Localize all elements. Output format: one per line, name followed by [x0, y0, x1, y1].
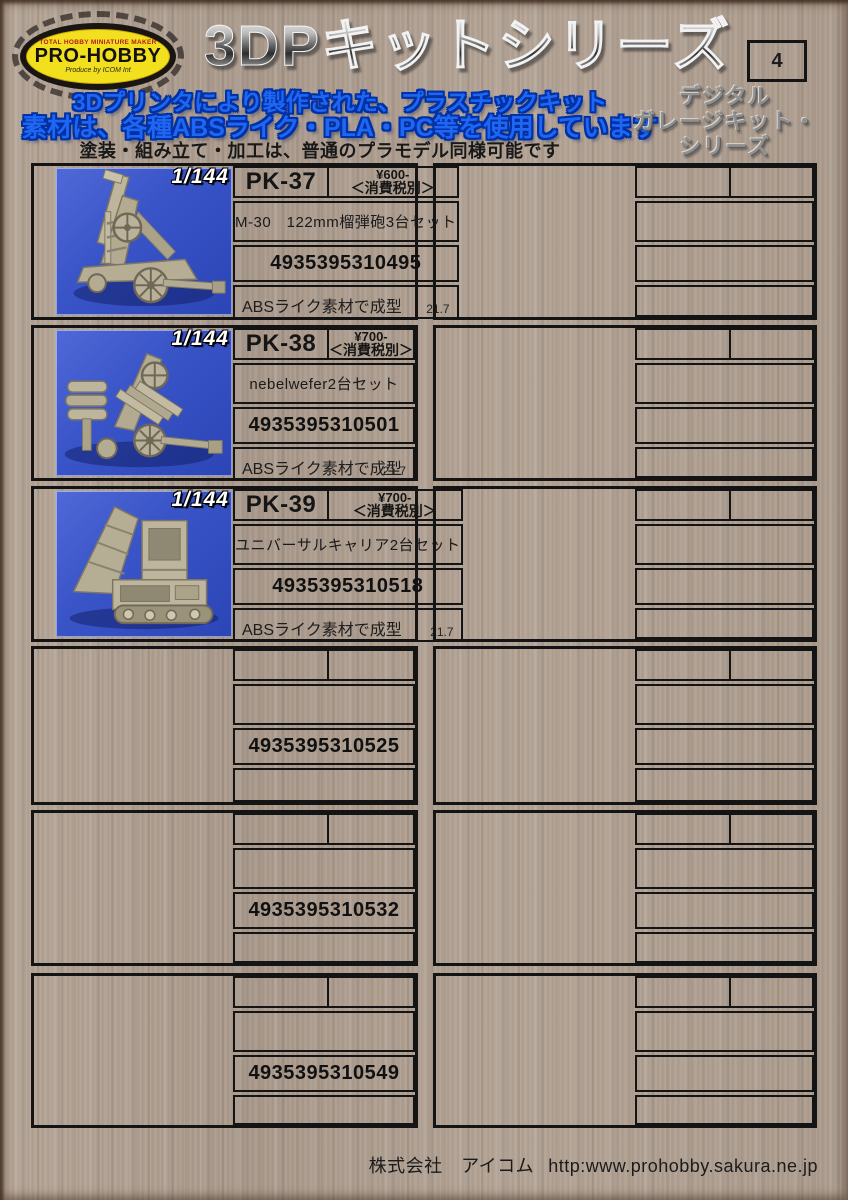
- material-cell: [635, 285, 814, 317]
- product-code: [637, 330, 731, 358]
- product-info: PK-39 ¥700- ＜消費税別＞ ユニバーサルキャリア2台セット 49353…: [233, 489, 463, 639]
- price-cell: [329, 978, 413, 1006]
- photo-area: 1/144: [34, 166, 233, 317]
- product-block: [433, 486, 817, 642]
- price-cell: [731, 168, 812, 196]
- material: ABSライク素材で成型: [242, 622, 402, 639]
- jan-code: [635, 892, 814, 929]
- jan-code: [635, 407, 814, 444]
- price-cell: [731, 815, 812, 843]
- product-info: [635, 976, 814, 1125]
- product-info: [635, 166, 814, 317]
- jan-code: [635, 728, 814, 765]
- release-date: 21.7: [383, 464, 406, 478]
- product-name: [233, 684, 415, 725]
- tax-note: ＜消費税別＞: [329, 343, 413, 358]
- page-number-box: 4: [747, 40, 807, 82]
- page-title-text: 3DPキットシリーズ: [204, 14, 731, 78]
- material: ABSライク素材で成型: [242, 299, 402, 316]
- photo-area: [436, 649, 635, 802]
- product-name: [233, 848, 415, 889]
- series-label-line-1: デジタル: [632, 84, 818, 109]
- header-cell: [635, 649, 814, 681]
- product-photo: 1/144: [56, 491, 232, 637]
- price-cell: ¥700- ＜消費税別＞: [329, 330, 413, 358]
- header-cell: [233, 649, 415, 681]
- logo-tagline-bottom: Produce by ICOM Int: [65, 67, 130, 74]
- page-number: 4: [771, 50, 782, 72]
- header-cell: [635, 489, 814, 521]
- material-cell: [635, 608, 814, 639]
- product-block: [433, 646, 817, 805]
- product-info: 4935395310532: [233, 813, 415, 963]
- material-cell: [635, 932, 814, 963]
- product-info: 4935395310549: [233, 976, 415, 1125]
- header-cell: [635, 813, 814, 845]
- photo-area: [34, 976, 233, 1125]
- photo-area: [34, 813, 233, 963]
- product-info: PK-37 ¥600- ＜消費税別＞ M-30 122mm榴弾砲3台セット 49…: [233, 166, 459, 317]
- header-cell: [635, 328, 814, 360]
- header-cell: [635, 166, 814, 198]
- price-cell: [731, 978, 812, 1006]
- header-cell: PK-39 ¥700- ＜消費税別＞: [233, 489, 463, 521]
- header-cell: PK-37 ¥600- ＜消費税別＞: [233, 166, 459, 198]
- jan-code: 4935395310525: [233, 728, 415, 765]
- product-code: PK-37: [235, 168, 329, 196]
- model-photo-illustration: [56, 491, 232, 637]
- product-info: [635, 649, 814, 802]
- page-title: 3DPキットシリーズ: [185, 14, 750, 78]
- tax-note: ＜消費税別＞: [353, 504, 437, 519]
- price-cell: [329, 815, 413, 843]
- material-cell: ABSライク素材で成型 21.7: [233, 285, 459, 319]
- header-cell: [233, 976, 415, 1008]
- product-code: [637, 651, 731, 679]
- product-code: [637, 491, 731, 519]
- scale-label: 1/144: [171, 488, 229, 512]
- product-block: 4935395310532: [31, 810, 418, 966]
- product-photo: 1/144: [56, 168, 232, 315]
- photo-area: [436, 328, 635, 478]
- product-code: [235, 978, 329, 1006]
- catalog-grid: 1/144 PK-37 ¥600- ＜消費税別＞ M-30 122mm榴弾砲3台…: [31, 163, 818, 1133]
- product-name: [635, 363, 814, 404]
- material-cell: ABSライク素材で成型 21.7: [233, 608, 463, 642]
- scale-label: 1/144: [171, 165, 229, 189]
- footer: 株式会社 アイコムhttp:www.prohobby.sakura.ne.jp: [0, 1152, 818, 1178]
- price-cell: [731, 651, 812, 679]
- product-name: M-30 122mm榴弾砲3台セット: [233, 201, 459, 242]
- header-cell: PK-38 ¥700- ＜消費税別＞: [233, 328, 415, 360]
- photo-area: [436, 489, 635, 639]
- product-info: PK-38 ¥700- ＜消費税別＞ nebelwefer2台セット 49353…: [233, 328, 415, 478]
- product-block: [433, 325, 817, 481]
- model-photo-illustration: [56, 330, 232, 476]
- jan-code: 4935395310495: [233, 245, 459, 282]
- jan-code: [635, 245, 814, 282]
- header-cell: [233, 813, 415, 845]
- model-photo-illustration: [56, 168, 232, 315]
- product-info: [635, 328, 814, 478]
- product-code: [637, 815, 731, 843]
- photo-area: [436, 976, 635, 1125]
- jan-code: 4935395310549: [233, 1055, 415, 1092]
- product-code: [637, 168, 731, 196]
- series-label-line-3: シリーズ: [632, 134, 818, 159]
- material-cell: [233, 1095, 415, 1125]
- product-photo: 1/144: [56, 330, 232, 476]
- photo-area: [34, 649, 233, 802]
- product-name: [635, 1011, 814, 1052]
- logo-brand: PRO-HOBBY: [35, 46, 162, 67]
- product-name: [635, 524, 814, 565]
- material-cell: ABSライク素材で成型 21.7: [233, 447, 415, 481]
- product-info: [635, 813, 814, 963]
- price-cell: [329, 651, 413, 679]
- photo-area: 1/144: [34, 489, 233, 639]
- product-name: [233, 1011, 415, 1052]
- product-code: PK-39: [235, 491, 329, 519]
- material-cell: [233, 768, 415, 802]
- product-block: 1/144 PK-39 ¥700- ＜消費税別＞ ユニバーサルキャリア2台セット…: [31, 486, 418, 642]
- material-cell: [635, 768, 814, 802]
- material-cell: [233, 932, 415, 963]
- tax-note: ＜消費税別＞: [351, 181, 435, 196]
- header-cell: [635, 976, 814, 1008]
- material-cell: [635, 447, 814, 478]
- product-name: nebelwefer2台セット: [233, 363, 415, 404]
- series-label-line-2: ガレージキット・: [632, 109, 818, 134]
- product-code: [637, 978, 731, 1006]
- price-cell: [731, 330, 812, 358]
- price-cell: [731, 491, 812, 519]
- product-name: [635, 848, 814, 889]
- logo-badge: TOTAL HOBBY MINIATURE MAKER PRO-HOBBY Pr…: [26, 29, 170, 84]
- website-url: http:www.prohobby.sakura.ne.jp: [548, 1156, 818, 1176]
- jan-code: [635, 1055, 814, 1092]
- scale-label: 1/144: [171, 327, 229, 351]
- product-name: [635, 684, 814, 725]
- photo-area: [436, 166, 635, 317]
- product-block: 1/144 PK-38 ¥700- ＜消費税別＞ nebelwefer2台セット…: [31, 325, 418, 481]
- jan-code: 4935395310518: [233, 568, 463, 605]
- product-block: [433, 163, 817, 320]
- company-name: 株式会社 アイコム: [369, 1156, 535, 1176]
- material: ABSライク素材で成型: [242, 461, 402, 478]
- jan-code: 4935395310532: [233, 892, 415, 929]
- product-block: 1/144 PK-37 ¥600- ＜消費税別＞ M-30 122mm榴弾砲3台…: [31, 163, 418, 320]
- product-code: [235, 815, 329, 843]
- product-block: 4935395310525: [31, 646, 418, 805]
- product-block: 4935395310549: [31, 973, 418, 1128]
- jan-code: [635, 568, 814, 605]
- series-label: デジタル ガレージキット・ シリーズ: [632, 84, 818, 159]
- product-info: 4935395310525: [233, 649, 415, 802]
- product-name: ユニバーサルキャリア2台セット: [233, 524, 463, 565]
- material-cell: [635, 1095, 814, 1125]
- product-code: [235, 651, 329, 679]
- jan-code: 4935395310501: [233, 407, 415, 444]
- product-code: PK-38: [235, 330, 329, 358]
- photo-area: 1/144: [34, 328, 233, 478]
- product-block: [433, 810, 817, 966]
- paint-note: 塗装・組み立て・加工は、普通のプラモデル同様可能です: [0, 137, 640, 163]
- product-info: [635, 489, 814, 639]
- photo-area: [436, 813, 635, 963]
- product-name: [635, 201, 814, 242]
- product-block: [433, 973, 817, 1128]
